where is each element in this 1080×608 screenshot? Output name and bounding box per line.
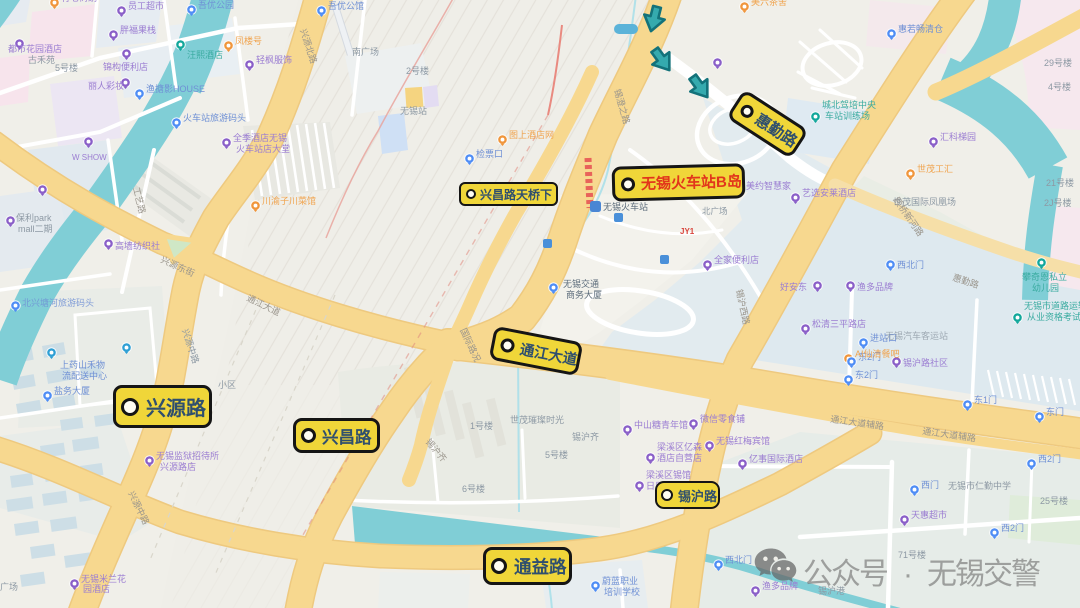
svg-text:无锡站: 无锡站 xyxy=(400,105,427,116)
svg-text:都市花园酒店: 都市花园酒店 xyxy=(8,43,62,54)
svg-text:AI仙清餐吧: AI仙清餐吧 xyxy=(855,348,900,359)
svg-text:凤楼号: 凤楼号 xyxy=(235,35,262,46)
svg-text:世茂璀璨时光: 世茂璀璨时光 xyxy=(510,414,564,425)
svg-text:梁溪区亿森: 梁溪区亿森 xyxy=(657,441,702,452)
svg-text:世茂工汇: 世茂工汇 xyxy=(917,163,953,174)
svg-text:西2门: 西2门 xyxy=(1001,522,1024,533)
svg-text:无锡监狱招待所: 无锡监狱招待所 xyxy=(156,450,219,461)
svg-text:艺选安莱酒店: 艺选安莱酒店 xyxy=(802,187,856,198)
svg-text:北广场: 北广场 xyxy=(702,206,728,216)
svg-text:锡沪路社区: 锡沪路社区 xyxy=(903,357,948,368)
svg-text:2号楼: 2号楼 xyxy=(406,65,429,76)
svg-text:锦构便利店: 锦构便利店 xyxy=(103,61,148,72)
svg-text:吾优公馆: 吾优公馆 xyxy=(328,0,364,11)
svg-text:无锡市道路运输: 无锡市道路运输 xyxy=(1024,300,1080,311)
svg-text:北兴塘河旅游码头: 北兴塘河旅游码头 xyxy=(22,297,94,308)
svg-text:培训学校: 培训学校 xyxy=(604,586,640,597)
svg-text:渔多品牌: 渔多品牌 xyxy=(857,281,893,292)
svg-text:21号楼: 21号楼 xyxy=(1046,177,1074,188)
svg-text:攀奇恩私立: 攀奇恩私立 xyxy=(1022,271,1067,282)
svg-text:胖福果栈: 胖福果栈 xyxy=(120,24,156,35)
svg-text:惠若畅清仓: 惠若畅清仓 xyxy=(898,23,943,34)
svg-text:1号楼: 1号楼 xyxy=(470,420,493,431)
svg-text:锡沪齐: 锡沪齐 xyxy=(572,431,599,442)
svg-text:火车站店大堂: 火车站店大堂 xyxy=(236,143,290,154)
svg-text:无锡交通: 无锡交通 xyxy=(563,278,599,289)
svg-text:川渝子川菜馆: 川渝子川菜馆 xyxy=(262,195,316,206)
svg-text:梁溪区锡馆: 梁溪区锡馆 xyxy=(646,469,691,480)
svg-text:古禾苑: 古禾苑 xyxy=(28,54,55,65)
svg-text:广场: 广场 xyxy=(0,581,18,592)
svg-text:无锡米兰花: 无锡米兰花 xyxy=(81,573,126,584)
svg-text:有七树绣: 有七树绣 xyxy=(61,0,97,3)
svg-text:商务大厦: 商务大厦 xyxy=(566,289,602,300)
svg-text:蔚蓝职业: 蔚蓝职业 xyxy=(602,575,638,586)
svg-text:无锡市仁勤中学: 无锡市仁勤中学 xyxy=(948,480,1011,491)
svg-text:从业资格考试中心: 从业资格考试中心 xyxy=(1027,311,1080,322)
svg-text:25号楼: 25号楼 xyxy=(1040,495,1068,506)
svg-text:全季酒店无锡: 全季酒店无锡 xyxy=(233,132,287,143)
svg-text:好安东: 好安东 xyxy=(780,281,807,292)
svg-text:汪熙酒店: 汪熙酒店 xyxy=(187,49,223,60)
svg-text:5号楼: 5号楼 xyxy=(545,449,568,460)
svg-text:中山糖青年馆: 中山糖青年馆 xyxy=(634,419,688,430)
svg-text:西门: 西门 xyxy=(921,479,939,490)
svg-text:图上酒店网: 图上酒店网 xyxy=(509,129,554,140)
svg-text:检票口: 检票口 xyxy=(476,148,503,159)
svg-text:2J号楼: 2J号楼 xyxy=(1044,197,1072,208)
svg-text:5号楼: 5号楼 xyxy=(55,62,78,73)
svg-text:高墙纺织社: 高墙纺织社 xyxy=(115,240,160,251)
svg-text:兴源路店: 兴源路店 xyxy=(160,461,196,472)
svg-text:轻枫服饰: 轻枫服饰 xyxy=(256,54,292,65)
svg-text:亿事国际酒店: 亿事国际酒店 xyxy=(749,453,803,464)
svg-text:幼儿园: 幼儿园 xyxy=(1032,282,1059,293)
svg-text:松清三平路店: 松清三平路店 xyxy=(812,318,866,329)
svg-text:火车站旅游码头: 火车站旅游码头 xyxy=(183,112,246,123)
svg-text:美六茶舍: 美六茶舍 xyxy=(751,0,787,7)
svg-text:城北驾培中央: 城北驾培中央 xyxy=(822,99,876,110)
svg-text:无锡火车站: 无锡火车站 xyxy=(603,201,648,212)
svg-text:酒店自营店: 酒店自营店 xyxy=(657,452,702,463)
svg-text:mall二期: mall二期 xyxy=(18,224,53,234)
svg-text:流配送中心: 流配送中心 xyxy=(62,370,107,381)
svg-text:W SHOW: W SHOW xyxy=(72,153,107,162)
svg-text:微信零食铺: 微信零食铺 xyxy=(700,413,745,424)
svg-text:东1门: 东1门 xyxy=(974,394,997,405)
svg-text:6号楼: 6号楼 xyxy=(462,483,485,494)
svg-text:车站训练场: 车站训练场 xyxy=(825,110,870,121)
svg-text:东门: 东门 xyxy=(1046,406,1064,417)
svg-text:丽人彩妆: 丽人彩妆 xyxy=(88,80,124,91)
svg-text:西北门: 西北门 xyxy=(725,554,752,565)
svg-text:园酒店: 园酒店 xyxy=(83,583,110,594)
svg-text:渔搪影HOUSE: 渔搪影HOUSE xyxy=(146,83,205,94)
svg-text:29号楼: 29号楼 xyxy=(1044,57,1072,68)
svg-text:无锡红梅宾馆: 无锡红梅宾馆 xyxy=(716,435,770,446)
svg-text:美约智慧家: 美约智慧家 xyxy=(746,180,791,191)
svg-text:员工超市: 员工超市 xyxy=(128,0,164,11)
svg-text:汇科梯园: 汇科梯园 xyxy=(940,131,976,142)
svg-text:西北门: 西北门 xyxy=(897,259,924,270)
svg-text:小区: 小区 xyxy=(218,380,236,390)
svg-text:保利park: 保利park xyxy=(16,212,52,223)
svg-text:无锡汽车客运站: 无锡汽车客运站 xyxy=(885,330,948,341)
svg-text:4号楼: 4号楼 xyxy=(1048,81,1071,92)
svg-text:盐务大厦: 盐务大厦 xyxy=(54,385,90,396)
svg-text:南广场: 南广场 xyxy=(352,46,379,57)
svg-text:天惠超市: 天惠超市 xyxy=(911,509,947,520)
svg-text:吾优公园: 吾优公园 xyxy=(198,0,234,10)
svg-text:全家便利店: 全家便利店 xyxy=(714,254,759,265)
svg-text:西2门: 西2门 xyxy=(1038,453,1061,464)
svg-text:JY1: JY1 xyxy=(680,227,695,236)
svg-text:东2门: 东2门 xyxy=(855,369,878,380)
svg-text:上药山禾物: 上药山禾物 xyxy=(60,359,105,370)
